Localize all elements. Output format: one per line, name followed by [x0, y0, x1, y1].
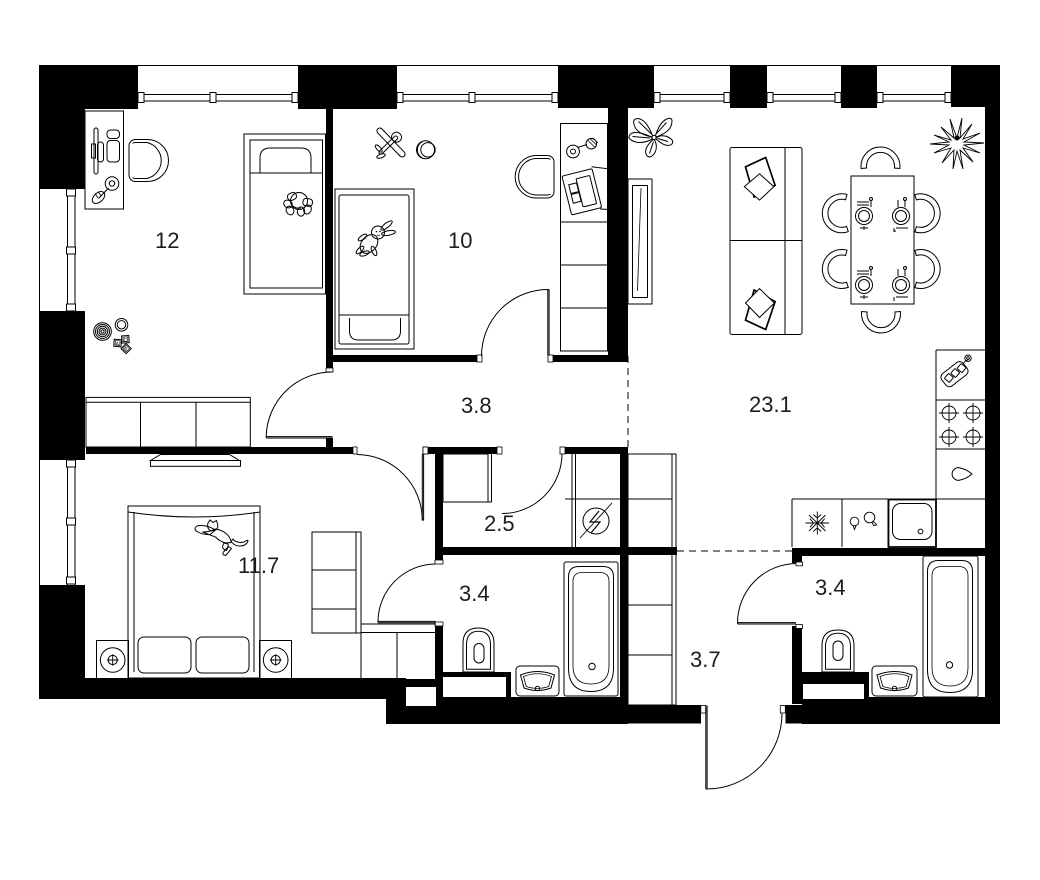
svg-text:23.1: 23.1 — [749, 392, 792, 417]
svg-text:12: 12 — [155, 228, 179, 253]
svg-text:10: 10 — [448, 228, 472, 253]
svg-text:2.5: 2.5 — [484, 511, 515, 536]
svg-text:11.7: 11.7 — [238, 553, 279, 578]
svg-text:3.4: 3.4 — [815, 575, 846, 600]
svg-text:3.8: 3.8 — [461, 393, 492, 418]
svg-text:3.4: 3.4 — [459, 581, 490, 606]
svg-text:C: C — [123, 338, 127, 344]
svg-text:3.7: 3.7 — [690, 647, 721, 672]
